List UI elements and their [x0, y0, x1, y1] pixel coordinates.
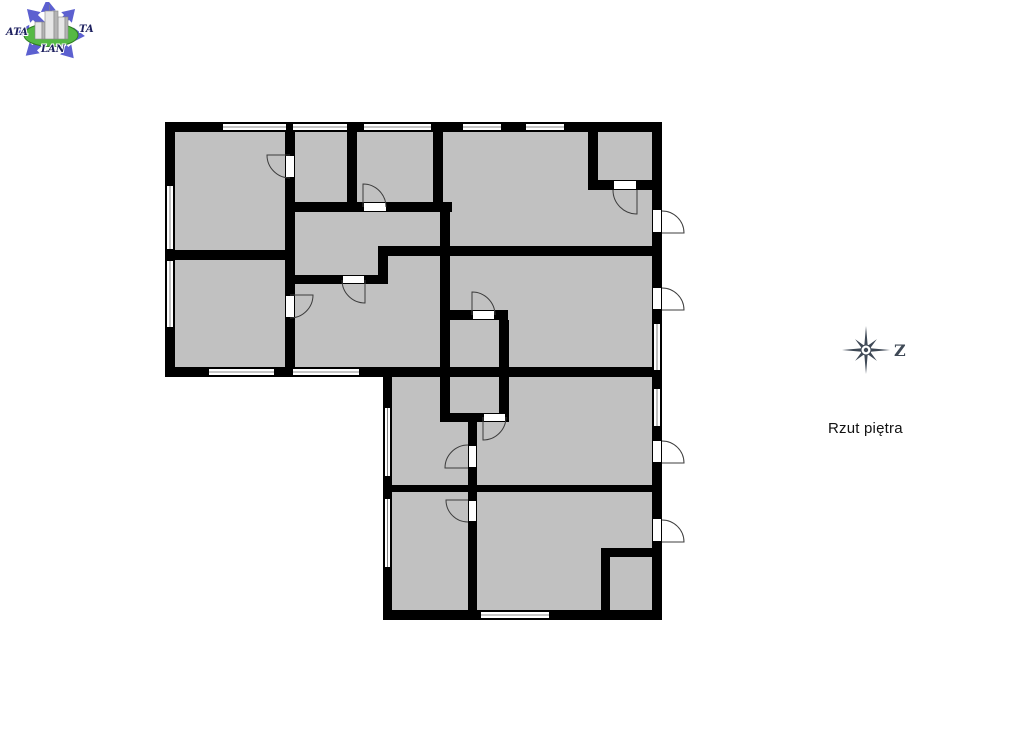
- wall: [601, 548, 662, 557]
- wall: [601, 548, 610, 620]
- wall: [383, 367, 392, 620]
- door-opening: [653, 441, 662, 463]
- compass-rose: Z: [836, 322, 914, 380]
- room-floor: [387, 372, 657, 616]
- door-swing-arc: [662, 520, 684, 542]
- door-opening: [286, 296, 295, 318]
- agency-logo-watermark: ATA TA LAN: [2, 2, 106, 62]
- door-opening: [286, 156, 295, 178]
- door-opening: [653, 519, 662, 542]
- door-swing-arc: [662, 441, 684, 463]
- wall: [433, 122, 443, 212]
- agency-logo-svg: ATA TA LAN: [2, 2, 106, 62]
- logo-text-left: ATA: [5, 27, 28, 38]
- door-opening: [484, 414, 506, 422]
- compass-svg: Z: [836, 322, 914, 380]
- logo-text-right: TA: [79, 24, 94, 35]
- door-opening: [469, 446, 477, 468]
- wall: [652, 122, 662, 620]
- wall: [499, 320, 509, 422]
- door-opening: [469, 501, 477, 522]
- door-swing-arc: [662, 211, 684, 233]
- logo-text-bottom: LAN: [40, 44, 66, 55]
- door-opening: [653, 210, 662, 233]
- wall: [383, 485, 662, 492]
- compass-hub-dot: [864, 348, 868, 352]
- wall: [285, 275, 388, 284]
- door-opening: [614, 181, 637, 190]
- door-opening: [653, 288, 662, 310]
- floorplan-page: { "page": { "title": "Rzut piętra" }, "l…: [0, 0, 1024, 750]
- wall: [378, 246, 662, 256]
- door-opening: [343, 276, 365, 284]
- wall: [588, 122, 598, 190]
- door-swing-arc: [662, 288, 684, 310]
- door-opening: [364, 203, 387, 212]
- door-opening: [473, 311, 495, 320]
- wall: [347, 122, 357, 212]
- plan-title: Rzut piętra: [828, 420, 903, 437]
- wall: [165, 250, 295, 260]
- compass-direction-label: Z: [894, 341, 906, 360]
